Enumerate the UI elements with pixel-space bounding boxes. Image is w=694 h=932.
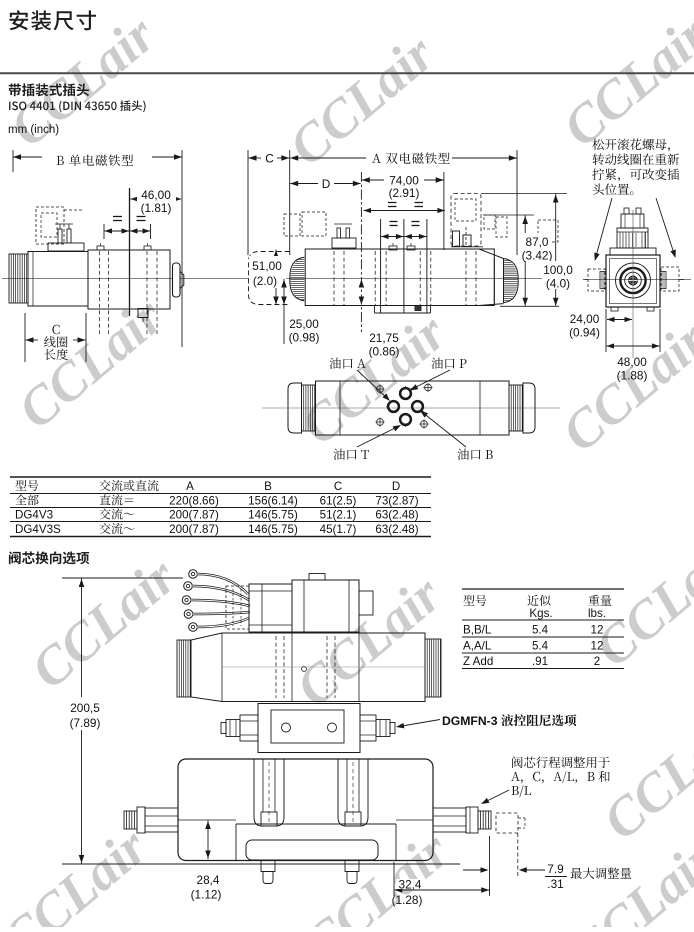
svg-text:(1.28): (1.28) bbox=[392, 893, 423, 907]
svg-text:CCLair: CCLair bbox=[20, 546, 188, 701]
svg-text:21,75: 21,75 bbox=[369, 331, 399, 345]
svg-text:DG4V3: DG4V3 bbox=[15, 509, 53, 522]
svg-text:(0.86): (0.86) bbox=[369, 345, 400, 359]
svg-text:146(5.75): 146(5.75) bbox=[248, 523, 298, 536]
svg-text:(1.81): (1.81) bbox=[141, 201, 172, 215]
svg-text:200(7.87): 200(7.87) bbox=[169, 509, 219, 522]
svg-text:51,00: 51,00 bbox=[252, 259, 282, 273]
svg-text:87,0: 87,0 bbox=[526, 235, 549, 249]
svg-text:63(2.48): 63(2.48) bbox=[375, 523, 418, 536]
svg-text:D: D bbox=[392, 480, 400, 493]
svg-text:(2.0): (2.0) bbox=[253, 274, 277, 288]
svg-text:(3.42): (3.42) bbox=[522, 249, 553, 263]
svg-text:63(2.48): 63(2.48) bbox=[375, 509, 418, 522]
svg-text:200(7.87): 200(7.87) bbox=[169, 523, 219, 536]
svg-text:(0.94): (0.94) bbox=[569, 326, 600, 340]
svg-text:Kgs.: Kgs. bbox=[529, 607, 552, 620]
svg-text:DGMFN-3: DGMFN-3 bbox=[442, 714, 498, 728]
svg-text:7.9: 7.9 bbox=[547, 862, 563, 876]
svg-text:.91: .91 bbox=[532, 655, 548, 668]
svg-text:CCLair: CCLair bbox=[552, 4, 694, 159]
svg-text:A: A bbox=[186, 480, 194, 493]
svg-text:156(6.14): 156(6.14) bbox=[248, 495, 298, 508]
svg-text:CCLair: CCLair bbox=[293, 820, 461, 927]
svg-text:25,00: 25,00 bbox=[289, 317, 319, 331]
svg-text:CCLair: CCLair bbox=[584, 524, 694, 679]
svg-text:32,4: 32,4 bbox=[399, 878, 422, 892]
svg-text:B: B bbox=[264, 480, 272, 493]
svg-text:73(2.87): 73(2.87) bbox=[375, 495, 418, 508]
svg-text:12: 12 bbox=[591, 624, 604, 637]
svg-text:(1.88): (1.88) bbox=[617, 369, 648, 383]
svg-text:CCLair: CCLair bbox=[592, 697, 694, 852]
svg-text:5.4: 5.4 bbox=[532, 624, 549, 637]
svg-text:45(1.7): 45(1.7) bbox=[320, 523, 357, 536]
svg-text:CCLair: CCLair bbox=[0, 816, 159, 927]
svg-text:(1.12): (1.12) bbox=[191, 888, 222, 902]
svg-text:51(2.1): 51(2.1) bbox=[320, 509, 357, 522]
svg-text:mm (inch): mm (inch) bbox=[8, 124, 59, 136]
svg-text:12: 12 bbox=[591, 640, 604, 653]
svg-text:(0.98): (0.98) bbox=[289, 331, 320, 345]
svg-text:2: 2 bbox=[594, 655, 600, 668]
svg-text:200,5: 200,5 bbox=[70, 701, 100, 715]
svg-text:46,00: 46,00 bbox=[141, 188, 171, 202]
svg-text:C: C bbox=[265, 152, 274, 166]
svg-text:5.4: 5.4 bbox=[532, 640, 549, 653]
svg-text:B,B/L: B,B/L bbox=[463, 624, 492, 637]
svg-text:.31: .31 bbox=[547, 877, 563, 891]
svg-text:D: D bbox=[322, 177, 331, 191]
svg-text:146(5.75): 146(5.75) bbox=[248, 509, 298, 522]
svg-text:C: C bbox=[334, 480, 342, 493]
svg-text:(7.89): (7.89) bbox=[70, 716, 101, 730]
svg-text:A,A/L: A,A/L bbox=[463, 640, 492, 653]
svg-text:CCLair: CCLair bbox=[278, 23, 446, 178]
svg-text:48,00: 48,00 bbox=[617, 355, 647, 369]
svg-text:CCLair: CCLair bbox=[285, 564, 453, 719]
svg-text:Z Add: Z Add bbox=[463, 655, 493, 668]
svg-text:28,4: 28,4 bbox=[197, 873, 220, 887]
svg-text:(2.91): (2.91) bbox=[389, 186, 420, 200]
svg-text:(4.0): (4.0) bbox=[546, 277, 570, 291]
svg-text:DG4V3S: DG4V3S bbox=[15, 523, 61, 536]
svg-text:220(8.66): 220(8.66) bbox=[169, 495, 219, 508]
svg-text:24,00: 24,00 bbox=[570, 312, 600, 326]
svg-text:100,0: 100,0 bbox=[543, 263, 573, 277]
svg-text:61(2.5): 61(2.5) bbox=[320, 495, 357, 508]
svg-text:lbs.: lbs. bbox=[588, 607, 606, 620]
